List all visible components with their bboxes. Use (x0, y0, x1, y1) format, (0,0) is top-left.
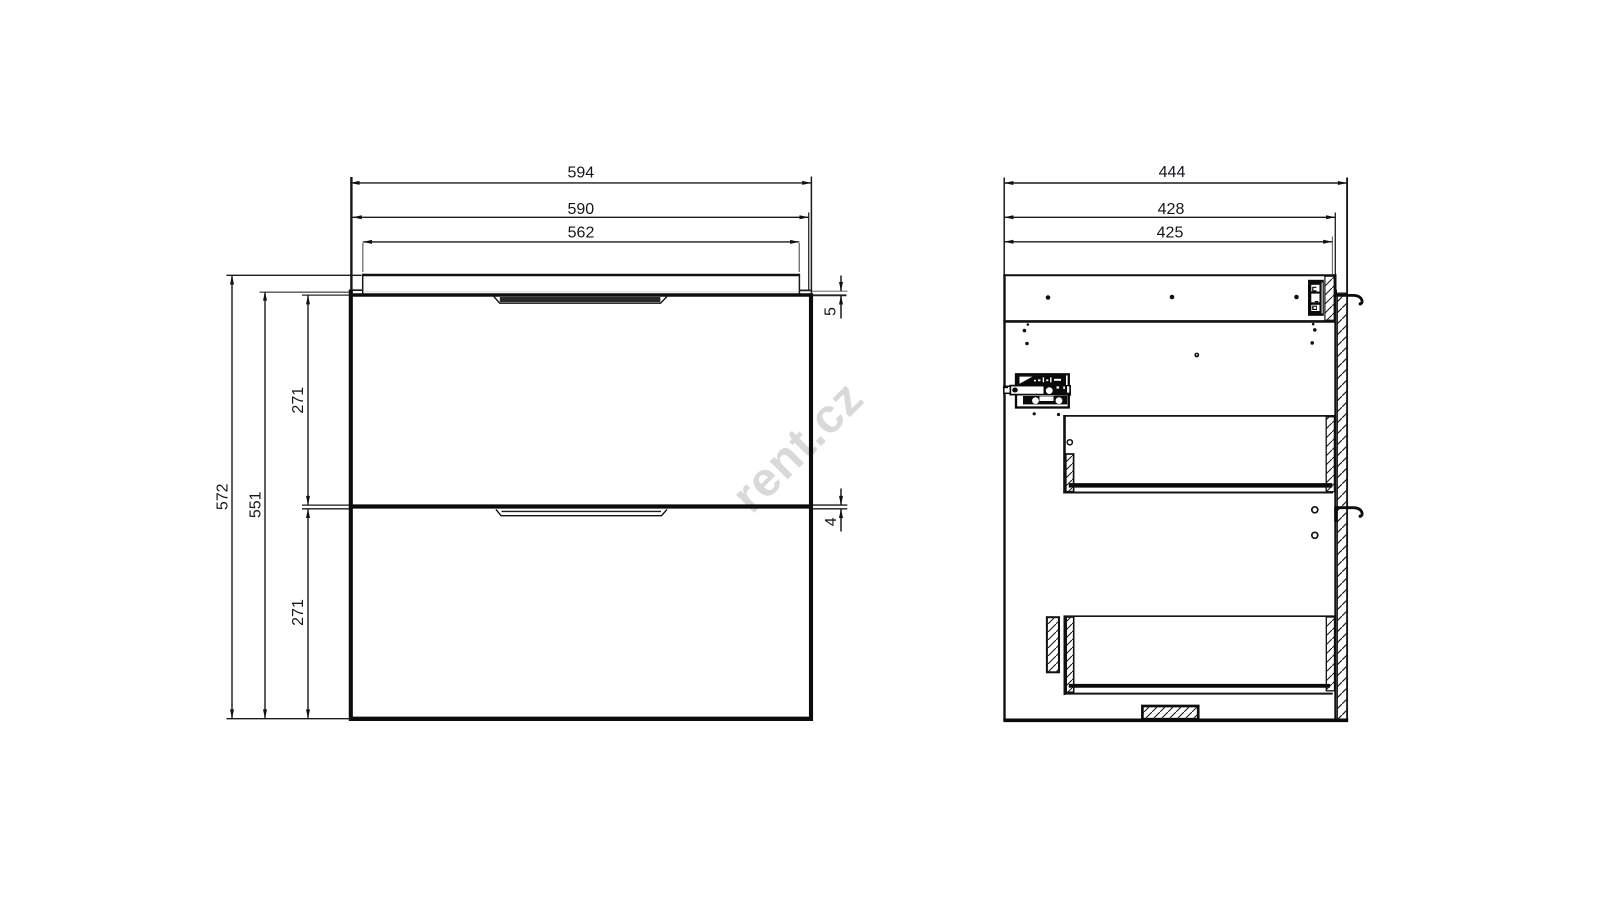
svg-text:271: 271 (290, 387, 307, 414)
svg-text:428: 428 (1158, 201, 1185, 218)
svg-text:444: 444 (1159, 164, 1186, 181)
svg-text:590: 590 (567, 201, 594, 218)
svg-text:4: 4 (823, 517, 840, 526)
svg-text:551: 551 (247, 491, 264, 518)
svg-text:572: 572 (215, 483, 232, 510)
svg-text:562: 562 (568, 225, 595, 242)
svg-text:425: 425 (1157, 225, 1184, 242)
svg-text:594: 594 (567, 164, 594, 181)
svg-text:271: 271 (290, 599, 307, 626)
svg-text:5: 5 (822, 307, 839, 316)
